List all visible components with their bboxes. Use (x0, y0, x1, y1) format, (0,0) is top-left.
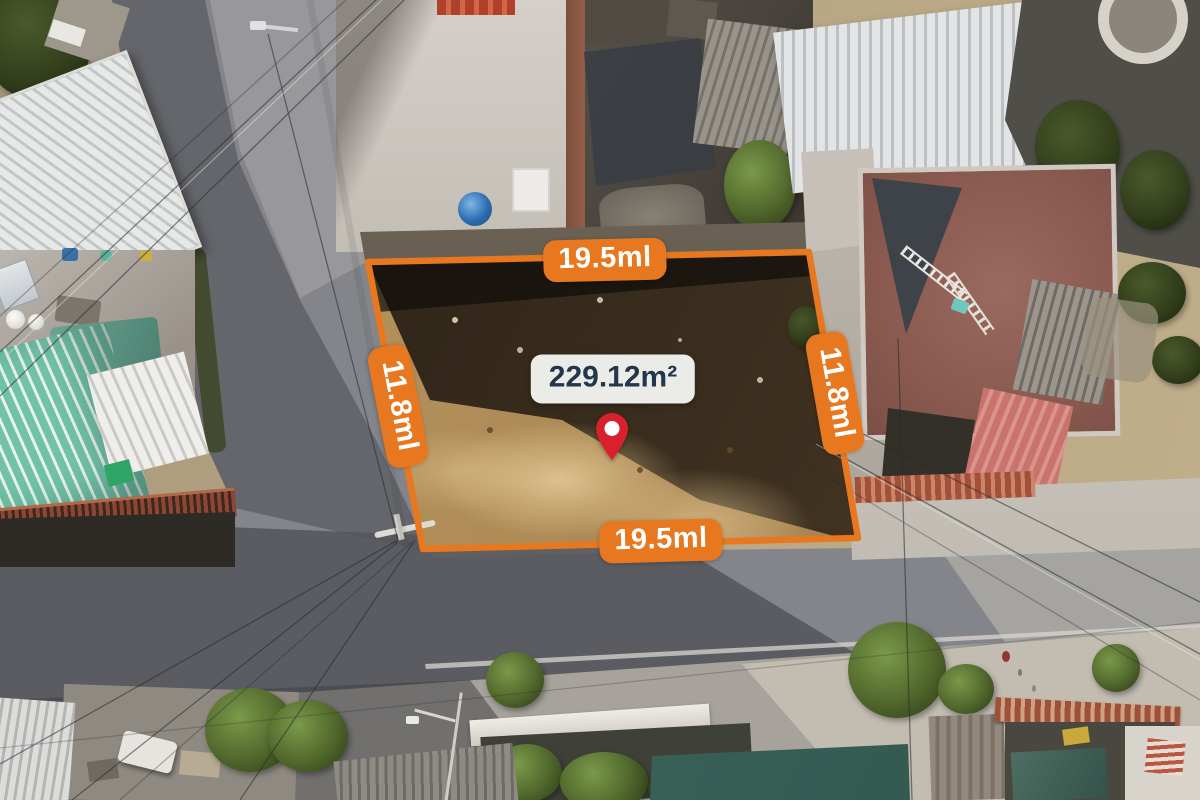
dimension-badge-top: 19.5ml (543, 238, 667, 283)
location-pin-icon (596, 413, 628, 463)
dimension-badge-bottom: 19.5ml (599, 518, 723, 563)
dimension-bottom-value: 19.5ml (614, 522, 708, 557)
dimension-top-value: 19.5ml (558, 241, 652, 275)
area-label: 229.12m² (531, 355, 695, 404)
area-value: 229.12m² (549, 361, 677, 394)
power-lines-highlight (6, 0, 1200, 660)
aerial-lot-photo: 19.5ml 19.5ml 11.8ml 11.8ml 229.12m² (0, 0, 1200, 800)
